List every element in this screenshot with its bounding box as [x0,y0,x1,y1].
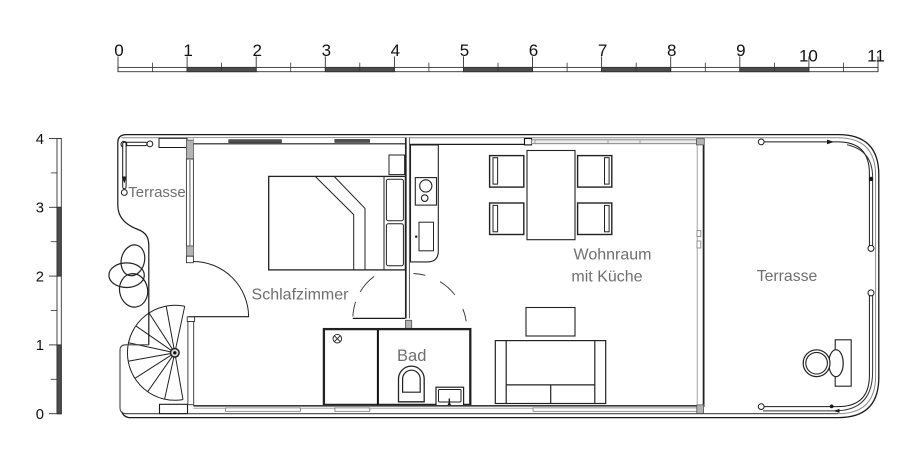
svg-text:mit Küche: mit Küche [571,269,642,286]
svg-text:8: 8 [667,41,676,60]
svg-text:6: 6 [529,41,538,60]
svg-text:0: 0 [114,41,123,60]
svg-text:4: 4 [36,132,44,148]
svg-text:2: 2 [36,269,44,285]
svg-text:2: 2 [252,41,261,60]
svg-text:4: 4 [391,41,400,60]
svg-text:Bad: Bad [397,347,426,365]
svg-text:Schlafzimmer: Schlafzimmer [252,287,350,304]
svg-text:Terrasse: Terrasse [128,184,186,201]
svg-text:1: 1 [183,41,192,60]
svg-text:7: 7 [598,41,607,60]
svg-text:3: 3 [36,201,44,217]
svg-text:11: 11 [867,46,885,65]
svg-text:0: 0 [36,407,44,423]
svg-text:1: 1 [36,338,44,354]
svg-text:5: 5 [460,41,469,60]
svg-text:10: 10 [799,46,818,65]
svg-text:Terrasse: Terrasse [757,268,818,285]
svg-text:3: 3 [322,41,331,60]
svg-text:9: 9 [736,41,745,60]
svg-text:Wohnraum: Wohnraum [574,247,652,264]
